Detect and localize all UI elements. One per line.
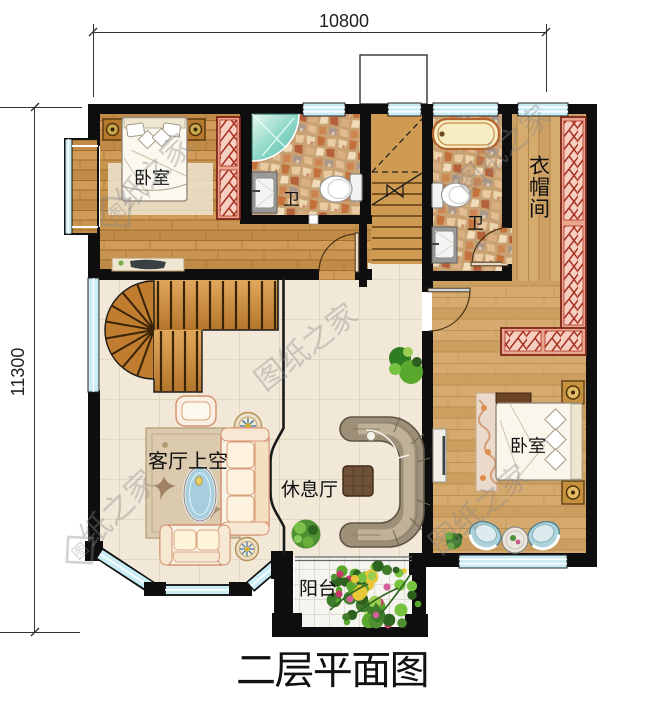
- svg-text:10800: 10800: [319, 11, 369, 31]
- svg-text:11300: 11300: [8, 348, 28, 397]
